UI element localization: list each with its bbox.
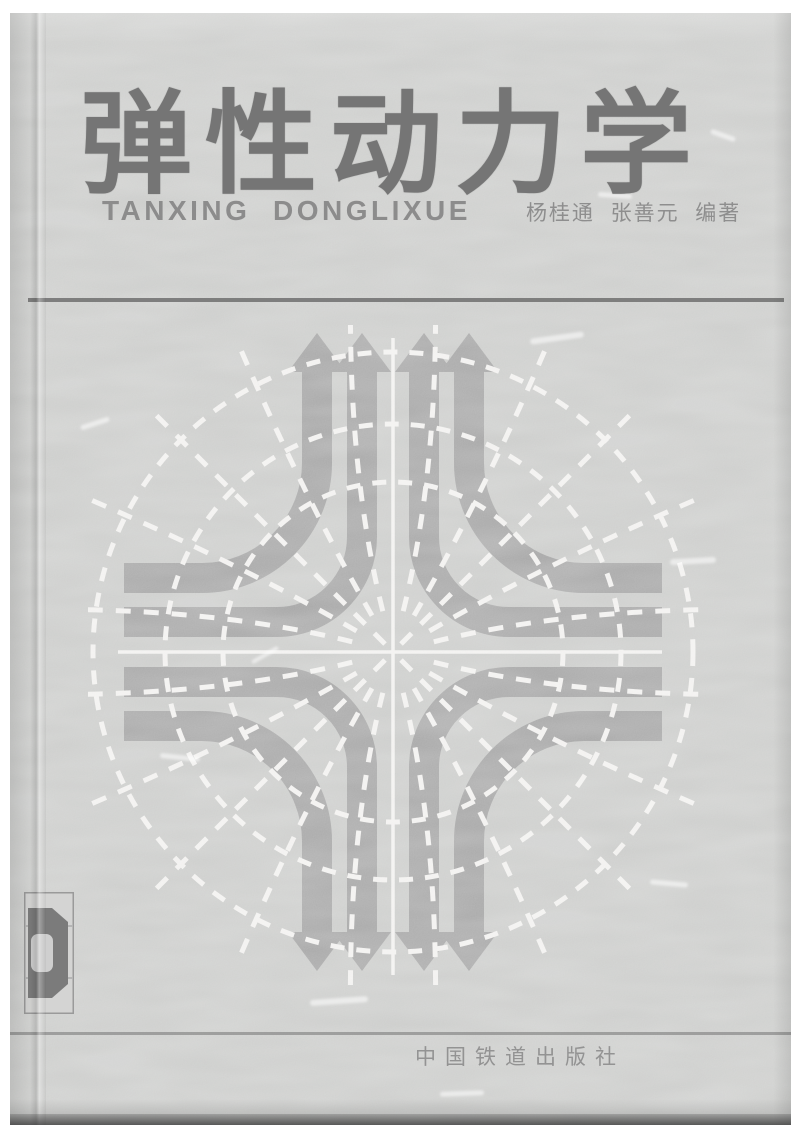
title-pinyin: TANXING DONGLIXUE bbox=[102, 195, 471, 227]
scanned-book-cover: 弹性动力学 TANXING DONGLIXUE 杨桂通 张善元 编著 中国铁道出… bbox=[0, 0, 809, 1145]
board-bottom-edge bbox=[10, 1114, 791, 1125]
board-crease-line bbox=[10, 1032, 791, 1035]
trajectory-lines-group bbox=[56, 315, 731, 990]
title-divider-rule bbox=[28, 298, 784, 302]
spine-hinge-crease bbox=[30, 13, 46, 1125]
subtitle-row: TANXING DONGLIXUE 杨桂通 张善元 编著 bbox=[102, 195, 741, 227]
book-title: 弹性动力学 bbox=[80, 89, 705, 201]
publisher-name: 中国铁道出版社 bbox=[415, 1041, 625, 1071]
authors: 杨桂通 张善元 编著 bbox=[526, 197, 741, 227]
cover-board: 弹性动力学 TANXING DONGLIXUE 杨桂通 张善元 编著 中国铁道出… bbox=[10, 13, 791, 1125]
